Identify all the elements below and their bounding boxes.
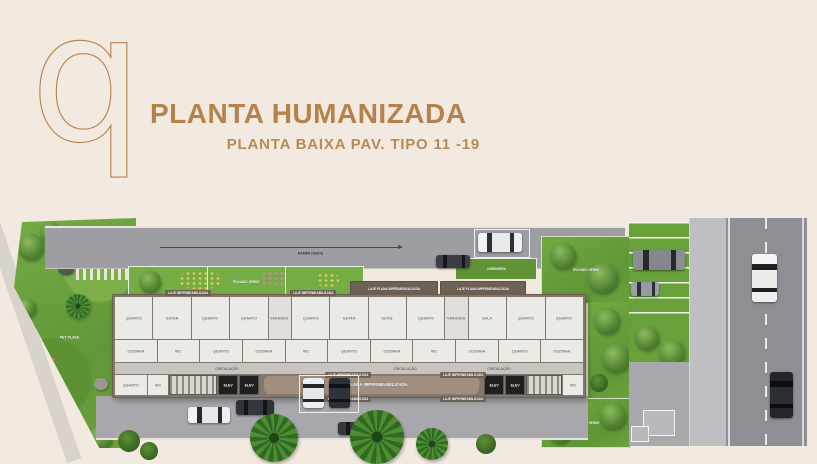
elevator: ELEV bbox=[239, 375, 259, 395]
bush bbox=[140, 442, 158, 460]
tree bbox=[18, 234, 44, 260]
utility-structure bbox=[631, 426, 649, 442]
room-label: COZINHA bbox=[255, 349, 272, 353]
room-label: QUARTO bbox=[512, 349, 528, 353]
car bbox=[436, 255, 470, 268]
laje-label: LAJE IMPERMEABILIZADA bbox=[443, 373, 484, 376]
room-label: QUARTO bbox=[556, 316, 572, 320]
page-subtitle: PLANTA BAIXA PAV. TIPO 11 -19 bbox=[150, 136, 480, 153]
room: QUARTO bbox=[230, 297, 267, 339]
elevator: ELEV bbox=[505, 375, 525, 395]
room: QUARTO bbox=[115, 297, 152, 339]
room: ESTAR bbox=[153, 297, 190, 339]
room-label: ESTAR bbox=[166, 316, 178, 320]
car bbox=[303, 378, 324, 408]
tree bbox=[139, 271, 161, 293]
laje-label: LAJE IMPERMEABILIZADA bbox=[443, 397, 484, 400]
car bbox=[329, 378, 350, 408]
parking-stripes bbox=[629, 222, 689, 320]
palm-tree bbox=[66, 294, 90, 318]
car bbox=[188, 407, 230, 423]
room: QUARTO bbox=[507, 297, 544, 339]
room: COZINHA bbox=[371, 340, 413, 362]
room: WC bbox=[158, 340, 200, 362]
elevator-label: ELEV bbox=[223, 383, 232, 387]
room: WC bbox=[563, 375, 583, 395]
tree bbox=[635, 326, 659, 350]
elevator: ELEV bbox=[484, 375, 504, 395]
ramp-label: RAMPA DESCE bbox=[298, 252, 323, 256]
elevator: ELEV bbox=[218, 375, 238, 395]
room: QUARTO bbox=[546, 297, 583, 339]
stairs bbox=[169, 375, 217, 395]
stepping-path bbox=[76, 268, 128, 280]
room-label: QUARTO bbox=[123, 383, 139, 387]
tree bbox=[602, 344, 630, 372]
green-roof-label: TELHADO VERDE bbox=[233, 280, 260, 283]
room: WC bbox=[413, 340, 455, 362]
room-label: QUARTO bbox=[518, 316, 534, 320]
room-label: COZINHA bbox=[383, 349, 400, 353]
room: COZINHA bbox=[243, 340, 285, 362]
car bbox=[478, 233, 522, 252]
room: QUARTO bbox=[200, 340, 242, 362]
flower-bed bbox=[179, 271, 221, 289]
room-label: VARANDA bbox=[271, 316, 289, 320]
room-label: WC bbox=[155, 383, 161, 387]
room: ESTAR bbox=[330, 297, 367, 339]
laje-tag: LAJE IMPERMEABILIZADA bbox=[440, 372, 486, 378]
laje-tag: LAJE IMPERMEABILIZADA bbox=[440, 396, 486, 402]
elevator-label: ELEV bbox=[510, 383, 519, 387]
palm-tree bbox=[250, 414, 298, 462]
room: WC bbox=[148, 375, 168, 395]
car bbox=[633, 250, 685, 270]
room-label: QUARTO bbox=[202, 316, 218, 320]
room: COZINHA bbox=[541, 340, 583, 362]
rooms-row-top: QUARTOESTARQUARTOQUARTOVARANDAQUARTOESTA… bbox=[115, 297, 583, 339]
laje-tag: LAJE IMPERMEABILIZADA bbox=[290, 290, 336, 296]
lane-divider bbox=[765, 218, 767, 446]
room: QUARTO bbox=[192, 297, 229, 339]
room-label: QUARTO bbox=[213, 349, 229, 353]
car bbox=[631, 282, 659, 296]
palm-tree bbox=[350, 410, 404, 464]
elevator-label: ELEV bbox=[244, 383, 253, 387]
room-label: WC bbox=[175, 349, 181, 353]
room: COZINHA bbox=[115, 340, 157, 362]
room-label: VARANDA bbox=[447, 316, 465, 320]
stairs bbox=[526, 375, 562, 395]
tree bbox=[594, 308, 620, 334]
car bbox=[236, 400, 274, 415]
room-label: SUITE bbox=[382, 316, 393, 320]
room: QUARTO bbox=[407, 297, 444, 339]
car bbox=[752, 254, 777, 302]
stone bbox=[94, 378, 108, 390]
planta-humanizada-page: q PLANTA HUMANIZADA PLANTA BAIXA PAV. TI… bbox=[0, 0, 817, 464]
page-title: PLANTA HUMANIZADA bbox=[150, 98, 466, 130]
room: QUARTO bbox=[328, 340, 370, 362]
room: QUARTO bbox=[499, 340, 541, 362]
bush bbox=[476, 434, 496, 454]
room: WC bbox=[286, 340, 328, 362]
room-label: COZINHA bbox=[468, 349, 485, 353]
laje-plana-label: LAJE PLANA IMPERMEABILIZADA bbox=[457, 288, 509, 291]
room-label: QUARTO bbox=[418, 316, 434, 320]
bush bbox=[590, 374, 608, 392]
room-label: QUARTO bbox=[341, 349, 357, 353]
circulacao-label: CIRCULAÇÃO bbox=[216, 367, 240, 371]
car bbox=[770, 372, 793, 418]
room-label: QUARTO bbox=[241, 316, 257, 320]
circulacao-label: CIRCULAÇÃO bbox=[393, 367, 417, 371]
laje-tag: LAJE IMPERMEABILIZADA bbox=[165, 290, 211, 296]
laje-label: LAJE IMPERMEABILIZADA bbox=[168, 291, 209, 294]
street-parking-strip bbox=[629, 222, 689, 446]
paved-pad bbox=[629, 362, 689, 446]
tree bbox=[600, 403, 626, 429]
laje-label: LAJE IMPERMEABILIZADA bbox=[293, 291, 334, 294]
pet-place-label: PET PLACE bbox=[60, 336, 80, 340]
room-label: COZINHA bbox=[127, 349, 144, 353]
palm-tree bbox=[416, 428, 448, 460]
room: SUITE bbox=[369, 297, 406, 339]
room: QUARTO bbox=[115, 375, 147, 395]
garden-right bbox=[588, 302, 629, 398]
room-label: WC bbox=[570, 383, 576, 387]
pet-equipment bbox=[52, 358, 55, 361]
laje-band: LAJE PLANA IMPERMEABILIZADA bbox=[263, 375, 480, 395]
room: COZINHA bbox=[456, 340, 498, 362]
room: QUARTO bbox=[292, 297, 329, 339]
room: SALA bbox=[469, 297, 506, 339]
bush bbox=[118, 430, 140, 452]
room-label: COZINHA bbox=[554, 349, 571, 353]
room-label: QUARTO bbox=[126, 316, 142, 320]
ramp-arrow bbox=[160, 247, 398, 248]
room: VARANDA bbox=[269, 297, 291, 339]
green-roof-label: TELHADO VERDE bbox=[573, 268, 600, 271]
room-label: WC bbox=[431, 349, 437, 353]
room-label: SALA bbox=[482, 316, 492, 320]
flower-bed bbox=[261, 271, 287, 287]
pet-equipment bbox=[60, 384, 63, 387]
circulacao-label: CIRCULAÇÃO bbox=[487, 367, 511, 371]
rooms-row-mid: COZINHAWCQUARTOCOZINHAWCQUARTOCOZINHAWCC… bbox=[115, 340, 583, 362]
room-label: WC bbox=[303, 349, 309, 353]
tree bbox=[588, 263, 618, 293]
room: VARANDA bbox=[445, 297, 467, 339]
tree bbox=[550, 243, 576, 269]
sidewalk bbox=[689, 218, 727, 446]
room-label: ESTAR bbox=[343, 316, 355, 320]
jardineira-label: JARDINEIRA bbox=[486, 267, 505, 270]
laje-plana-label: LAJE PLANA IMPERMEABILIZADA bbox=[368, 288, 420, 291]
logo-letter: q bbox=[30, 2, 143, 182]
flower-bed bbox=[317, 273, 339, 287]
elevator-label: ELEV bbox=[489, 383, 498, 387]
room-label: QUARTO bbox=[303, 316, 319, 320]
